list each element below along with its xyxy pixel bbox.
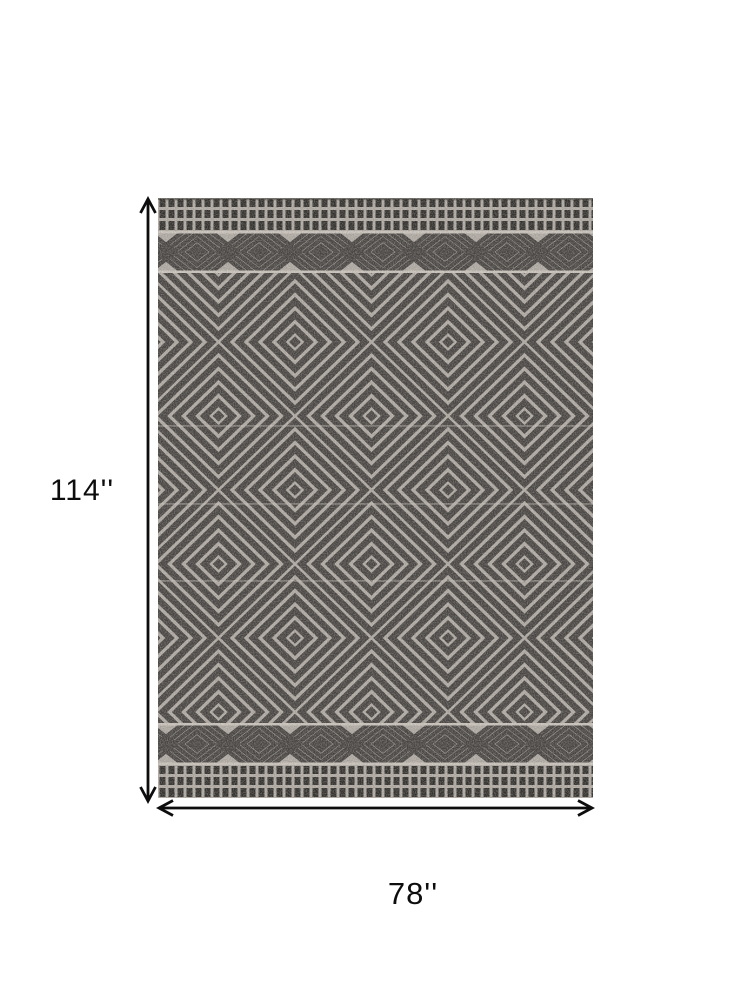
product-image-canvas: 114'' 78'' <box>0 0 750 1000</box>
vertical-dimension-arrow <box>141 199 156 801</box>
height-dimension-label: 114'' <box>30 476 134 506</box>
rug-texture <box>158 198 593 798</box>
horizontal-dimension-arrow <box>159 801 592 816</box>
rug-image <box>158 198 593 798</box>
width-dimension-label: 78'' <box>363 879 463 909</box>
